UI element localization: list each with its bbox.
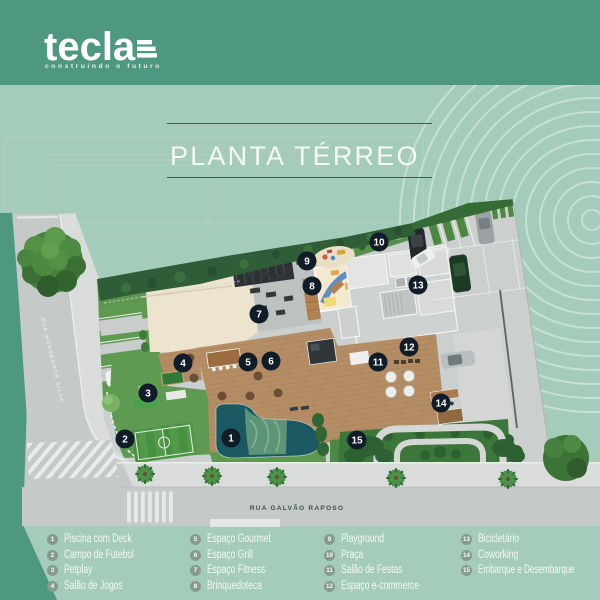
svg-text:14: 14 (435, 399, 447, 410)
svg-text:1: 1 (228, 434, 234, 445)
svg-text:10: 10 (373, 238, 385, 249)
svg-text:3: 3 (145, 389, 151, 400)
svg-text:12: 12 (403, 343, 415, 354)
svg-text:11: 11 (373, 358, 384, 369)
svg-text:6: 6 (268, 357, 274, 368)
svg-text:7: 7 (256, 310, 262, 321)
svg-text:9: 9 (304, 257, 310, 268)
svg-text:2: 2 (122, 435, 128, 446)
svg-text:4: 4 (180, 359, 186, 370)
svg-text:RUA GALVÃO RAPOSO: RUA GALVÃO RAPOSO (250, 503, 344, 512)
svg-text:8: 8 (309, 282, 315, 293)
svg-text:13: 13 (412, 281, 424, 292)
svg-text:15: 15 (351, 436, 363, 447)
svg-text:5: 5 (245, 358, 251, 369)
